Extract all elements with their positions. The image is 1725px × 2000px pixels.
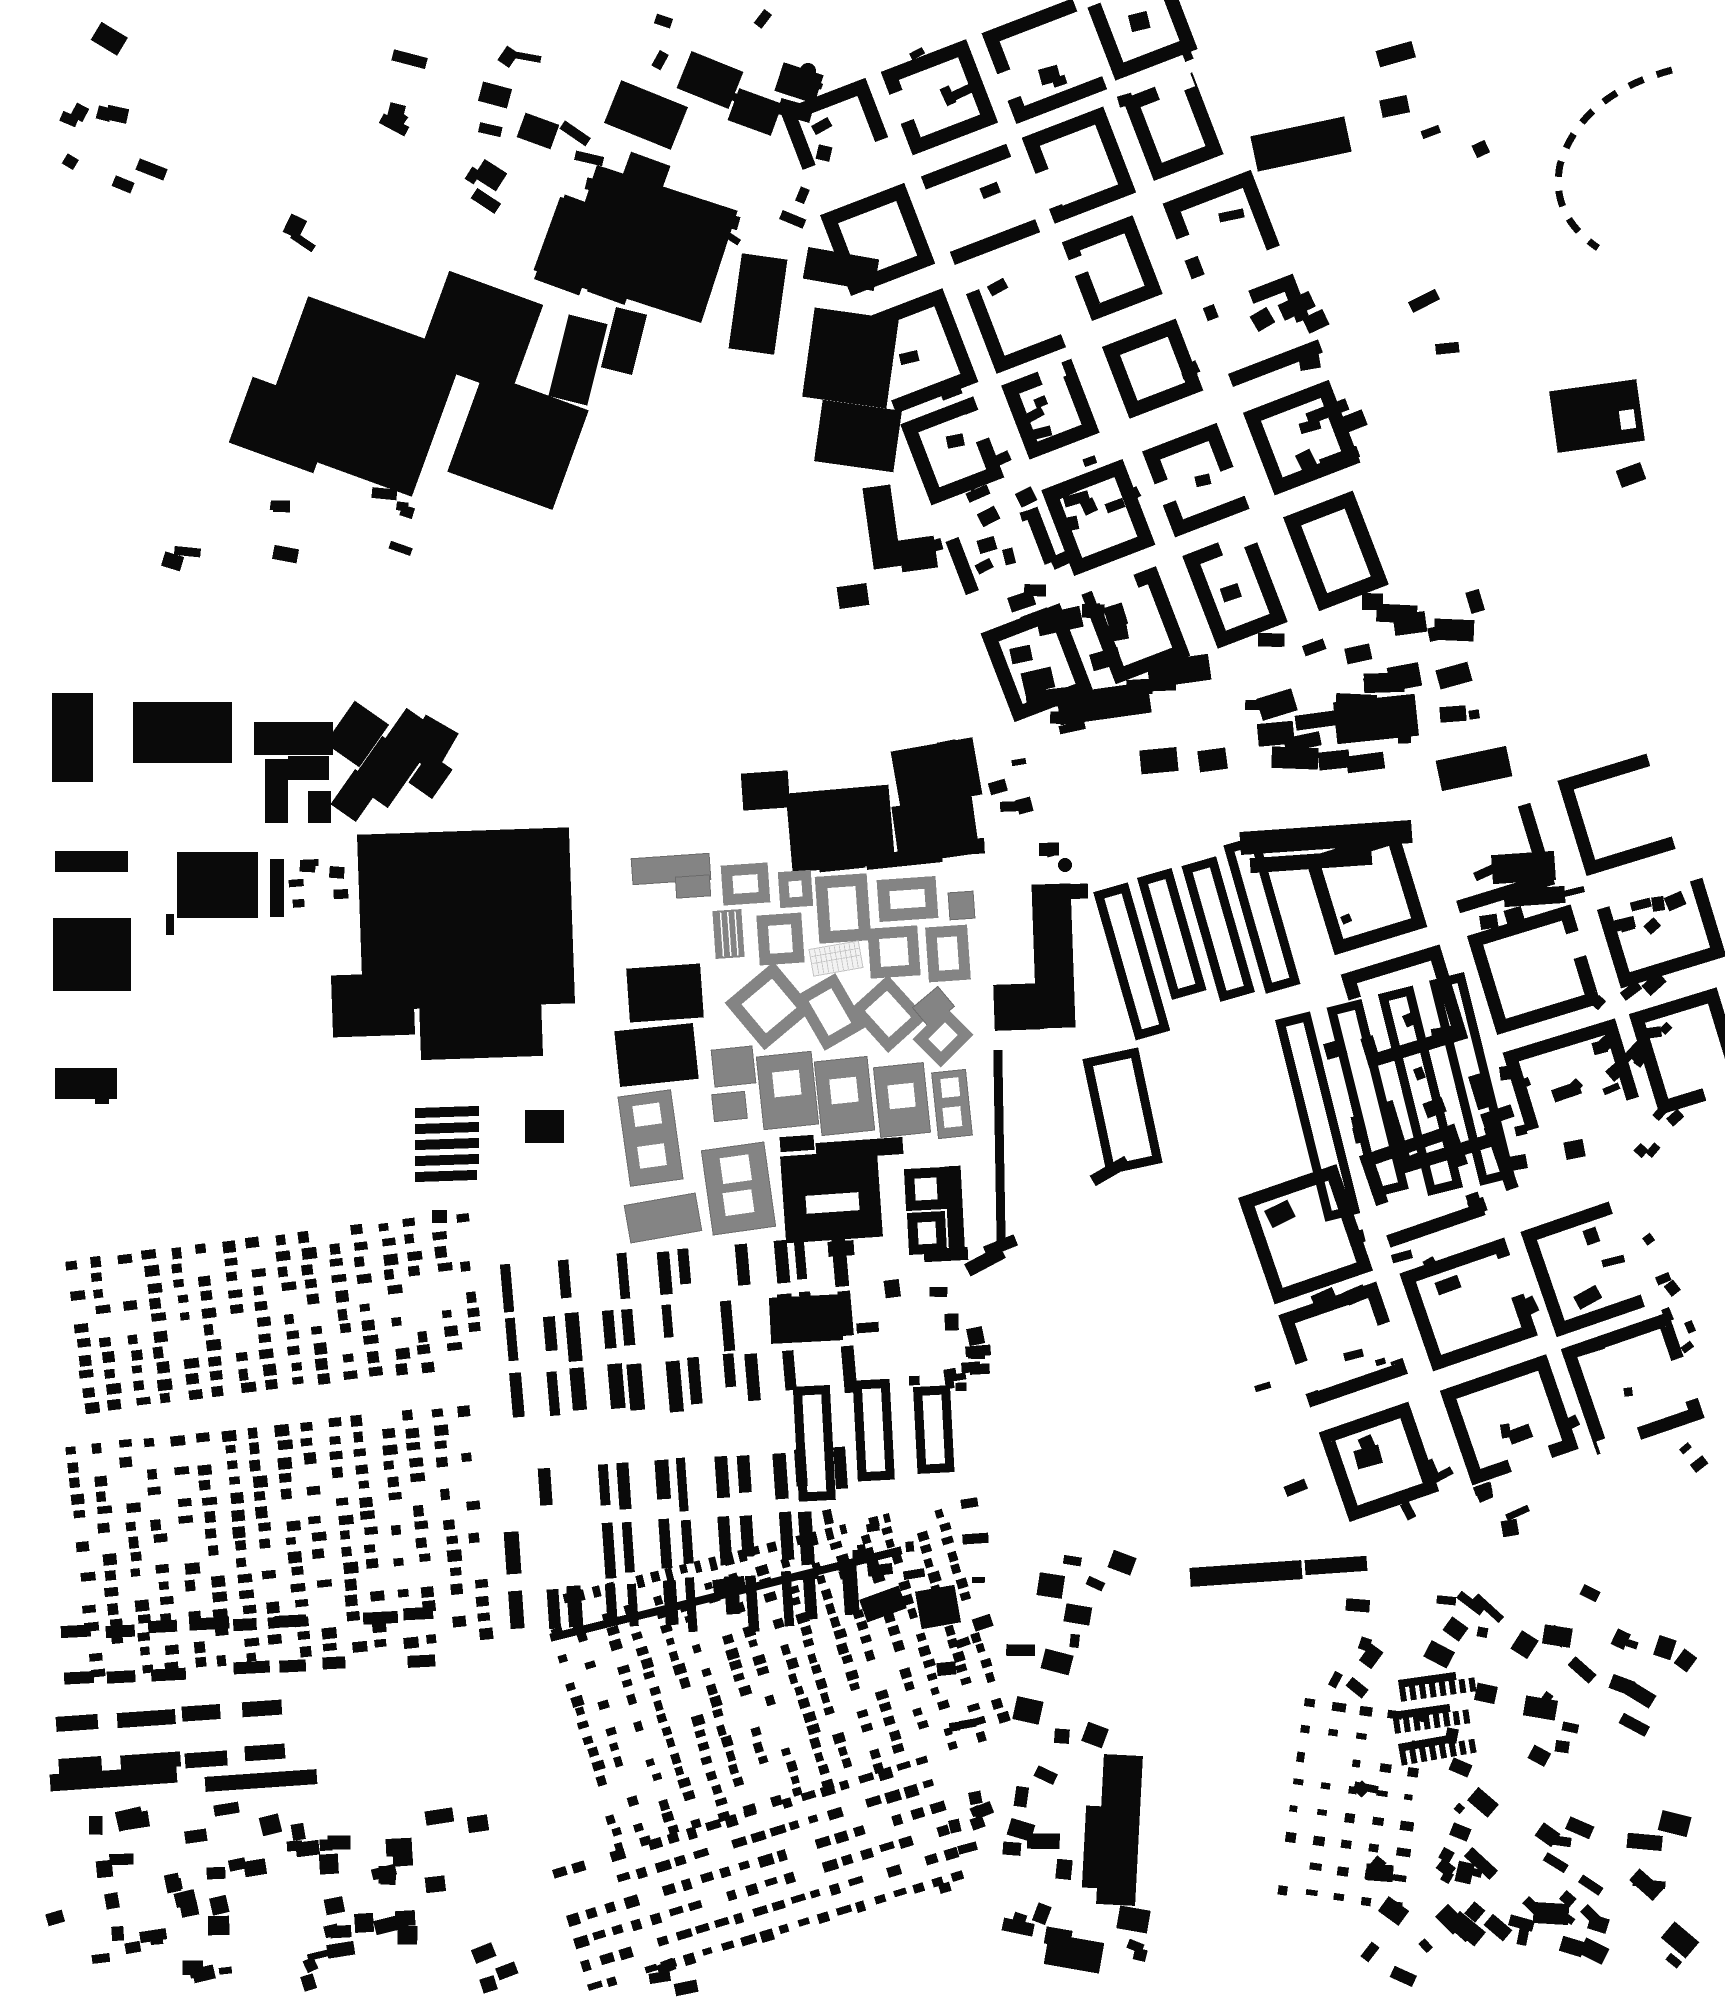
block-wall <box>945 537 978 595</box>
round-building <box>1058 858 1072 872</box>
row-house <box>304 1452 317 1465</box>
row-house <box>656 1713 667 1724</box>
row-house <box>920 1544 932 1554</box>
building <box>478 122 503 137</box>
allotment-hut <box>1337 1866 1349 1877</box>
row-house <box>359 1303 370 1311</box>
building <box>969 1363 990 1375</box>
allotment-hut <box>1277 1885 1288 1896</box>
row-house <box>277 1266 288 1277</box>
building <box>1139 747 1178 774</box>
building <box>1578 1874 1604 1895</box>
allotment-hut <box>552 1866 568 1879</box>
row-house <box>803 1638 815 1648</box>
row-house <box>391 1317 402 1327</box>
allotment-hut <box>714 1917 730 1928</box>
row-house <box>653 1595 663 1606</box>
building <box>1352 1125 1368 1144</box>
building <box>415 1170 477 1182</box>
row-house <box>947 1741 958 1751</box>
row-house <box>748 1639 758 1648</box>
allotment-hut <box>834 1830 849 1844</box>
row-house <box>279 1473 292 1483</box>
row-house <box>597 1699 610 1710</box>
building <box>1302 638 1327 656</box>
building <box>206 1867 225 1880</box>
row-house <box>356 1273 372 1284</box>
row-house <box>275 1250 290 1261</box>
row-house <box>147 1486 161 1495</box>
row-house <box>622 1522 635 1573</box>
allotment-hut <box>1376 1790 1388 1797</box>
building <box>674 1979 699 1996</box>
row-house <box>450 1583 463 1595</box>
block-wall <box>1708 1000 1725 1080</box>
building <box>91 1953 110 1964</box>
row-house <box>617 1664 631 1675</box>
row-house <box>194 1641 206 1653</box>
row-house <box>91 1272 103 1282</box>
row-house <box>602 1310 617 1349</box>
gray-area-black-notch <box>805 1192 859 1214</box>
row-house <box>856 1709 868 1719</box>
row-house <box>681 1520 694 1564</box>
row-house <box>772 1618 784 1630</box>
proposed-building <box>701 1142 775 1235</box>
proposed-courtyard <box>821 880 865 938</box>
building <box>1024 584 1046 596</box>
row-house <box>584 1660 596 1669</box>
allotment-hut <box>604 1901 616 1913</box>
row-house <box>704 1582 713 1591</box>
allotment-hut <box>1341 1839 1352 1849</box>
row-house <box>402 1218 415 1227</box>
row-house <box>275 1234 286 1245</box>
building <box>1346 752 1385 774</box>
building <box>1467 1787 1499 1818</box>
building <box>324 1896 346 1915</box>
proposed-building <box>873 931 915 973</box>
building <box>1684 1320 1696 1334</box>
row-house <box>413 1505 424 1517</box>
allotment-hut <box>808 1814 819 1824</box>
row-house <box>782 1350 797 1390</box>
proposed-courtyard <box>873 931 915 973</box>
proposed-building <box>857 983 919 1045</box>
allotment-hut <box>1392 1874 1406 1882</box>
row-house <box>753 1741 764 1753</box>
row-house <box>93 1289 103 1299</box>
infill-building <box>979 182 1001 200</box>
building <box>968 1352 985 1359</box>
allotment-hut <box>630 1919 642 1932</box>
building <box>987 278 1009 297</box>
ne-scatter <box>1278 41 1491 472</box>
building <box>1680 1341 1694 1354</box>
row-house <box>329 1258 343 1267</box>
row-house <box>265 1379 278 1390</box>
row-house <box>700 1755 712 1765</box>
row-house <box>290 1583 305 1593</box>
allotment-hut <box>740 1934 757 1947</box>
row-house <box>378 1223 389 1232</box>
building <box>1674 1648 1698 1672</box>
row-house <box>575 1706 585 1716</box>
building <box>104 1892 120 1910</box>
row-house <box>781 1747 791 1756</box>
row-house <box>407 1251 423 1262</box>
building <box>1344 643 1372 664</box>
row-house <box>329 1451 343 1460</box>
building <box>1651 896 1665 912</box>
row-house <box>291 1362 302 1371</box>
row-house <box>132 1365 143 1374</box>
row-house <box>596 1775 608 1787</box>
rows-lower <box>55 1700 286 1778</box>
building <box>300 1973 317 1992</box>
row-house <box>159 1581 169 1590</box>
block-wall <box>905 432 939 492</box>
building <box>205 1769 318 1792</box>
row-house <box>97 1523 110 1534</box>
row-house <box>345 1594 358 1606</box>
se-dense <box>1436 1745 1610 1958</box>
allotment-hut <box>1296 1751 1305 1762</box>
row-house <box>301 1247 317 1260</box>
row-house <box>892 1640 905 1653</box>
row-house <box>937 1699 950 1710</box>
row-house <box>238 1368 248 1381</box>
building <box>837 583 870 609</box>
row-house <box>598 1464 611 1506</box>
building <box>415 1154 479 1166</box>
building <box>55 851 128 872</box>
row-house <box>661 1304 673 1338</box>
row-house <box>434 1246 447 1259</box>
row-house <box>346 1611 360 1622</box>
building <box>1387 662 1423 691</box>
building <box>419 996 543 1060</box>
building <box>525 1110 564 1143</box>
row-house <box>941 1536 954 1546</box>
building <box>1479 914 1498 930</box>
row-house <box>450 1567 462 1576</box>
building <box>1679 1442 1692 1454</box>
row-house <box>631 1631 643 1641</box>
row-house <box>692 1644 702 1654</box>
allotment-hut <box>778 1924 789 1934</box>
row-house <box>468 1322 481 1332</box>
building <box>1555 1740 1570 1753</box>
building <box>208 1916 230 1936</box>
ne-row <box>1250 116 1351 171</box>
row-house <box>387 1476 399 1487</box>
row-house <box>360 1510 375 1520</box>
row-house <box>198 1275 211 1286</box>
row-house <box>605 1814 616 1825</box>
row-house <box>790 1775 800 1785</box>
allotment-hut <box>644 1964 657 1974</box>
building <box>559 120 591 146</box>
row-house <box>180 1312 190 1321</box>
row-house <box>153 1346 164 1359</box>
allotment-hut <box>585 1907 598 1919</box>
row-house <box>755 1564 770 1577</box>
block-wall <box>1001 372 1043 399</box>
allotment-hut <box>797 1917 810 1927</box>
building <box>272 545 299 564</box>
row-house <box>395 1347 410 1360</box>
building <box>1582 1227 1600 1246</box>
row-house <box>67 1462 79 1473</box>
row-house <box>382 1444 398 1455</box>
courtyard-building <box>912 1216 942 1249</box>
comb-tooth <box>1468 1739 1476 1754</box>
row-house <box>923 1658 936 1668</box>
row-house <box>208 1356 222 1367</box>
building <box>333 889 348 899</box>
building <box>91 22 128 56</box>
comb-building <box>1398 1669 1476 1701</box>
slab-row-building <box>184 1750 227 1768</box>
row-house <box>340 1323 352 1334</box>
row-house <box>388 1492 402 1501</box>
building <box>425 1875 446 1893</box>
allotment-hut <box>841 1854 854 1866</box>
row-house <box>79 1355 92 1367</box>
row-house <box>607 1363 626 1409</box>
row-house <box>633 1823 644 1833</box>
building <box>1391 1250 1413 1264</box>
row-house <box>764 1694 775 1706</box>
row-house <box>208 1545 219 1556</box>
block-wall <box>1124 228 1157 286</box>
allotment-hut <box>695 1923 710 1934</box>
slab-row-building <box>279 1659 306 1672</box>
row-house <box>71 1494 85 1506</box>
building <box>1658 1810 1692 1837</box>
row-house <box>694 1729 706 1738</box>
block-wall <box>1185 256 1205 280</box>
row-house <box>930 1687 940 1696</box>
building <box>95 1093 109 1104</box>
figure-ground-map <box>0 0 1725 2000</box>
proposed-courtyard <box>783 875 808 903</box>
allotment-hut <box>853 1825 866 1837</box>
round-building <box>800 63 816 79</box>
row-house <box>364 1526 378 1535</box>
round-building-dot <box>1058 858 1072 872</box>
building <box>273 501 290 513</box>
building <box>1378 1896 1409 1926</box>
row-house <box>403 1637 419 1650</box>
row-house <box>841 1654 853 1664</box>
block-wall <box>1306 1361 1408 1407</box>
building <box>378 1866 393 1884</box>
building <box>1653 1635 1677 1660</box>
allotment-hut <box>836 1904 853 1916</box>
building <box>292 899 304 908</box>
building <box>398 1926 418 1945</box>
row-house <box>756 1666 769 1676</box>
row-house <box>798 1697 811 1709</box>
building <box>1002 1841 1021 1855</box>
allotment-hut <box>896 1761 911 1771</box>
block-wall <box>1087 3 1123 68</box>
row-house <box>849 1682 860 1691</box>
courtyard-void <box>772 1070 801 1098</box>
row-house <box>875 1689 889 1701</box>
allotment-hut <box>606 1976 617 1987</box>
building <box>89 1816 102 1835</box>
block-wall <box>1574 955 1597 995</box>
building <box>327 1835 350 1849</box>
block-wall <box>1389 842 1424 918</box>
proposed-courtyard <box>762 918 799 959</box>
row-house <box>626 1363 645 1410</box>
row-house <box>823 1706 834 1716</box>
allotment-hut <box>1317 1809 1327 1816</box>
row-house <box>317 1579 332 1588</box>
building <box>993 983 1044 1031</box>
allotment-hut <box>790 1893 806 1904</box>
allotment-hut <box>884 1789 902 1804</box>
row-house <box>779 1511 795 1560</box>
allotment-hut <box>759 1928 775 1943</box>
row-house <box>147 1283 162 1294</box>
building <box>1081 1722 1109 1749</box>
building <box>1608 1674 1635 1696</box>
allotment-hut <box>708 1556 718 1571</box>
allotment-hut <box>860 1848 874 1861</box>
allotment-hut <box>929 1800 946 1814</box>
allotment-hut <box>848 1876 864 1887</box>
row-house <box>65 1260 77 1270</box>
building <box>654 14 673 29</box>
building <box>909 1376 920 1386</box>
row-house <box>95 1304 111 1314</box>
row-house <box>306 1293 319 1304</box>
building <box>945 1166 966 1261</box>
proposed-building <box>624 1193 702 1243</box>
row-house <box>944 1625 955 1637</box>
allotment-hut <box>566 1912 581 1927</box>
row-house <box>752 1654 766 1666</box>
courtyard-void <box>829 1077 858 1105</box>
row-house <box>676 1458 689 1512</box>
proposed-building <box>756 1051 818 1129</box>
building <box>1034 1765 1058 1785</box>
row-house <box>952 1651 965 1663</box>
row-house <box>230 1492 244 1504</box>
building <box>166 914 174 935</box>
row-house <box>883 1715 896 1726</box>
row-house <box>934 1509 944 1519</box>
block-wall <box>1345 1479 1439 1522</box>
block-wall <box>908 110 998 156</box>
building <box>1000 801 1018 812</box>
allotment-hut <box>616 1872 630 1883</box>
block-wall <box>1203 304 1219 321</box>
block-wall <box>881 39 971 85</box>
row-house <box>415 1537 427 1548</box>
building <box>1012 1696 1043 1725</box>
row-house <box>350 1224 363 1235</box>
comb-tooth <box>1403 1718 1411 1733</box>
slab-row-building <box>403 1607 433 1621</box>
row-house <box>128 1536 139 1549</box>
building <box>1505 1505 1530 1521</box>
building <box>955 1382 966 1391</box>
row-house <box>780 1644 791 1656</box>
row-house <box>211 1386 224 1398</box>
black-row-above-gray <box>741 737 983 872</box>
building <box>1642 1233 1655 1246</box>
row-house <box>711 1784 722 1795</box>
building <box>1565 1816 1595 1839</box>
courtyard-void <box>942 1106 962 1128</box>
building <box>1626 1833 1662 1851</box>
row-house <box>355 1464 368 1474</box>
allotment-hut <box>623 1894 640 1909</box>
building <box>1063 1603 1092 1625</box>
proposed-solid <box>712 1091 748 1121</box>
row-house <box>627 1795 639 1807</box>
row-house <box>569 1367 587 1410</box>
park-edge <box>1189 1556 1367 1587</box>
building <box>779 210 806 229</box>
block-wall <box>982 0 1078 46</box>
building <box>111 1926 124 1941</box>
allotment-hut <box>858 1772 874 1784</box>
building <box>856 1322 879 1334</box>
row-house <box>864 1650 875 1662</box>
row-house <box>253 1475 269 1488</box>
terraced-sw <box>89 1802 489 1959</box>
building <box>780 1135 815 1152</box>
row-house <box>825 1603 836 1615</box>
row-house <box>361 1319 375 1331</box>
building <box>955 1636 971 1648</box>
block-wall <box>1309 867 1344 943</box>
row-house <box>709 1695 722 1708</box>
row-house <box>210 1370 223 1381</box>
row-house <box>669 1651 680 1662</box>
block-wall <box>1187 564 1226 636</box>
row-house <box>845 1669 859 1681</box>
row-house <box>359 1497 373 1508</box>
block-wall <box>1209 436 1234 472</box>
row-house <box>178 1515 193 1524</box>
proposed-building <box>675 875 710 898</box>
proposed-courtyard <box>857 983 919 1045</box>
row-house <box>102 1351 115 1363</box>
building <box>958 1718 976 1729</box>
building <box>948 1819 962 1834</box>
building <box>1453 1803 1465 1815</box>
row-house <box>715 1797 728 1807</box>
row-house <box>582 1735 593 1745</box>
row-house <box>328 1417 341 1427</box>
row-house <box>170 1435 186 1446</box>
building <box>1579 1584 1600 1602</box>
comb-building <box>1392 1701 1470 1733</box>
row-house <box>119 1439 132 1448</box>
building <box>1011 758 1026 766</box>
comb-tooth <box>1409 1749 1417 1764</box>
row-house <box>73 1510 85 1519</box>
row-house <box>558 1260 572 1299</box>
